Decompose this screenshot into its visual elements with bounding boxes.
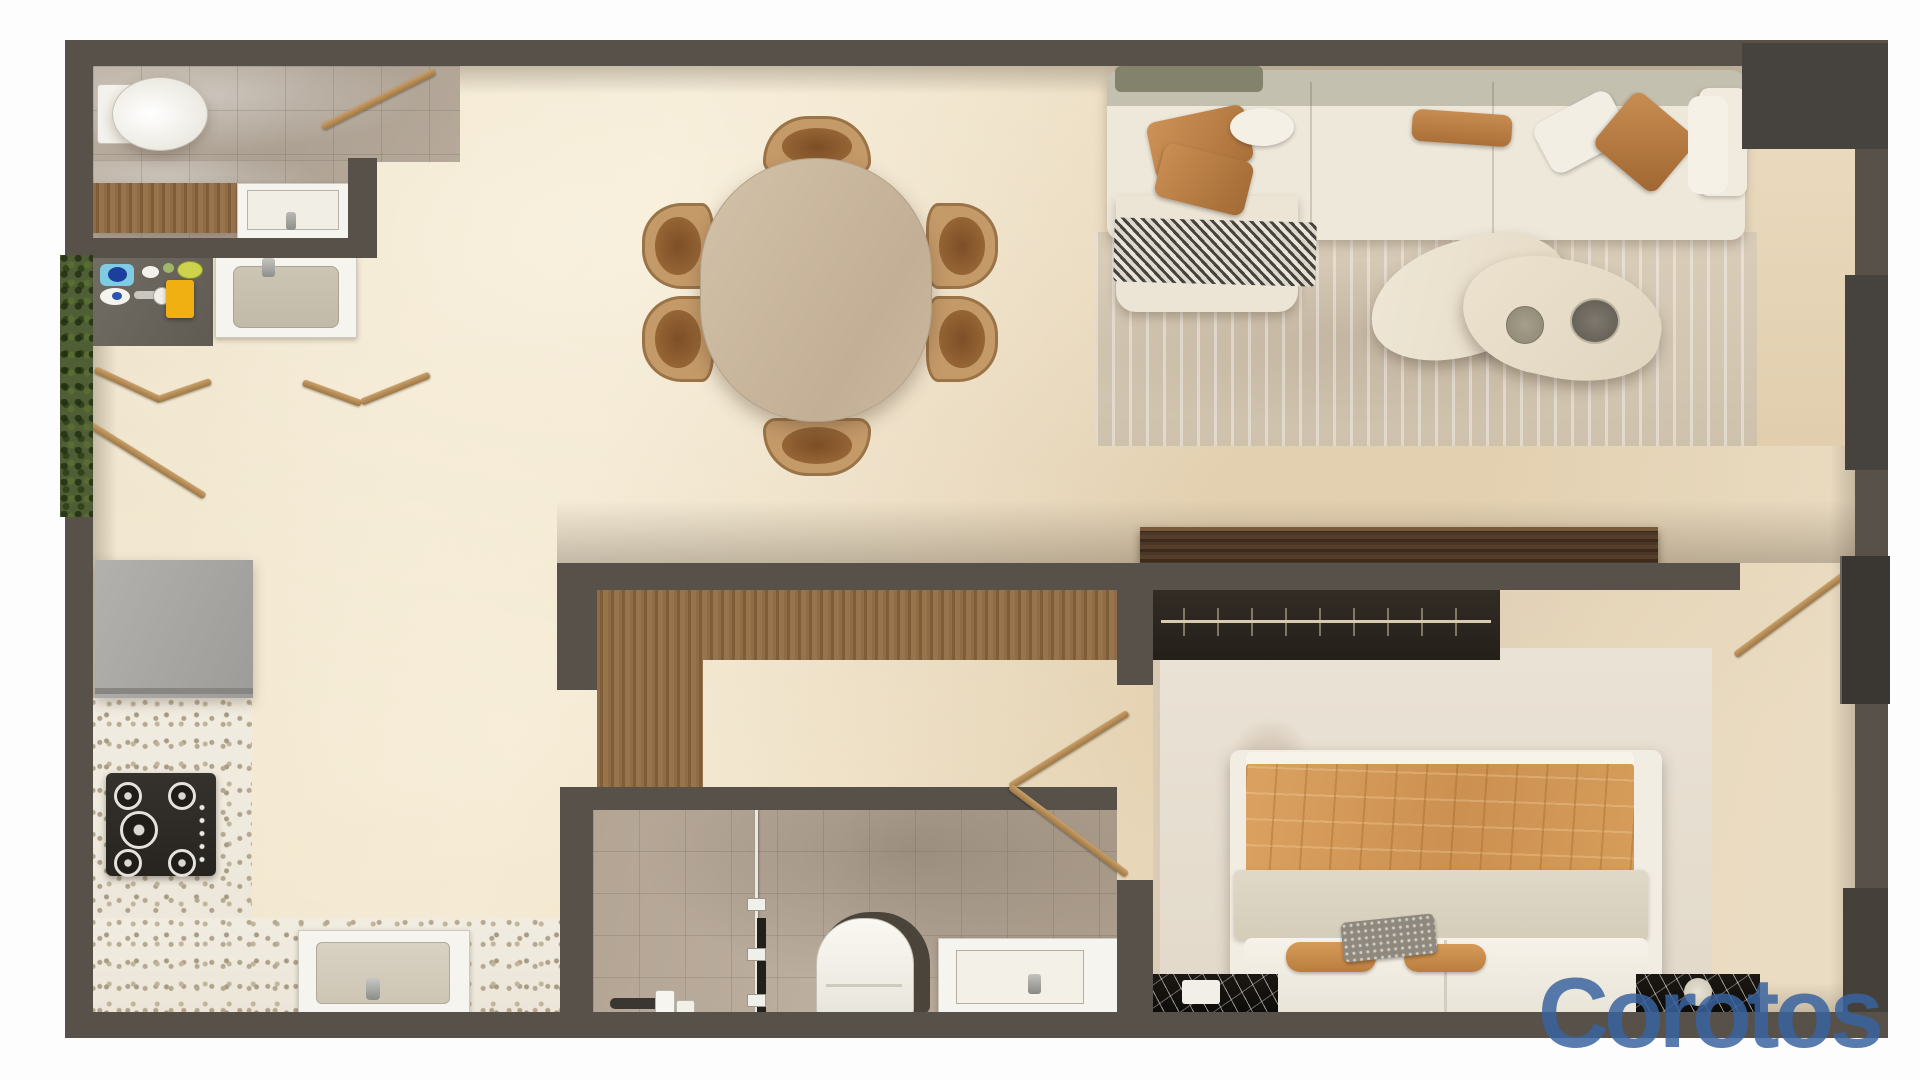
bed-duvet [1246, 764, 1634, 872]
chair-seat [655, 217, 701, 275]
burner-icon [120, 811, 158, 849]
closet-block-right-wall [1840, 556, 1890, 704]
toilet-icon [112, 77, 208, 151]
toilet2-seat-line [826, 984, 902, 987]
chair-seat [939, 217, 985, 275]
sofa-seam [1310, 82, 1312, 234]
cooktop [106, 773, 216, 876]
pillow-white-side [1688, 96, 1728, 194]
toilet-icon [816, 918, 914, 1016]
table-tray-icon [1506, 306, 1544, 344]
refrigerator-handle [95, 688, 253, 694]
wall-bedroom-left-upper [1117, 588, 1153, 685]
tv-console [1140, 527, 1658, 565]
tissue-box [1182, 980, 1220, 1004]
hanger-ticks [1183, 608, 1463, 636]
burner-icon [168, 849, 196, 877]
wall-utility-top [93, 238, 377, 258]
shower-bracket [747, 898, 766, 911]
detergent-blue-cap [108, 267, 127, 282]
wall-partition-main [557, 563, 1740, 590]
utility-sink-basin [233, 266, 339, 328]
apartment-floor-plan-render: Corotos [0, 0, 1920, 1080]
bed-folded-blanket [1234, 870, 1648, 940]
garden-strip [60, 255, 93, 517]
wardrobe-open [1153, 590, 1500, 660]
dining-chair [926, 203, 998, 289]
bathroom1-wood-counter [93, 183, 237, 233]
cooktop-knobs [196, 801, 208, 863]
sponge-yellow-green [177, 261, 203, 279]
sofa-throw-green [1115, 66, 1263, 92]
shower-bracket [747, 948, 766, 961]
tv-console-edge [1140, 527, 1658, 531]
wall-top [65, 40, 1888, 66]
chair-seat [782, 427, 851, 463]
chair-seat [655, 310, 701, 368]
pillow-white [1230, 108, 1294, 146]
soap-green [163, 263, 174, 273]
bathroom2-sink-basin [956, 950, 1084, 1004]
sponge-yellow [166, 280, 194, 318]
wall-left [65, 40, 93, 1038]
bathroom1-faucet-icon [286, 212, 296, 230]
wall-bathroom2-left [560, 787, 593, 1012]
burner-icon [114, 782, 142, 810]
patterned-throw [1113, 217, 1317, 286]
builtin-block-top-right [1742, 43, 1888, 149]
dining-chair [926, 296, 998, 382]
wall-partition-stub [557, 563, 597, 690]
soap-dish-dot [112, 292, 122, 300]
chair-seat [939, 310, 985, 368]
kitchen-faucet-icon [366, 978, 380, 1000]
burner-icon [168, 782, 196, 810]
utility-faucet-icon [262, 258, 275, 277]
watermark: Corotos [1538, 963, 1879, 1062]
wall-bedroom-left-lower [1117, 880, 1153, 1012]
soap-white [142, 266, 159, 278]
pillow-tan-lumbar [1411, 109, 1513, 148]
shower-bracket [747, 994, 766, 1007]
table-bowl-icon [1570, 298, 1620, 344]
living-side-floor [1757, 148, 1855, 446]
dining-table [700, 158, 932, 422]
sofa-seam [1492, 82, 1494, 234]
closet-block-right-wall [1845, 275, 1888, 470]
closet-wood-floor-side [597, 658, 703, 790]
bathroom2-faucet-icon [1028, 974, 1041, 994]
kitchen-sink-basin [316, 942, 450, 1004]
burner-icon [114, 849, 142, 877]
wall-bathroom1-right [348, 158, 377, 240]
refrigerator [95, 560, 253, 698]
closet-wood-floor [597, 590, 1117, 660]
